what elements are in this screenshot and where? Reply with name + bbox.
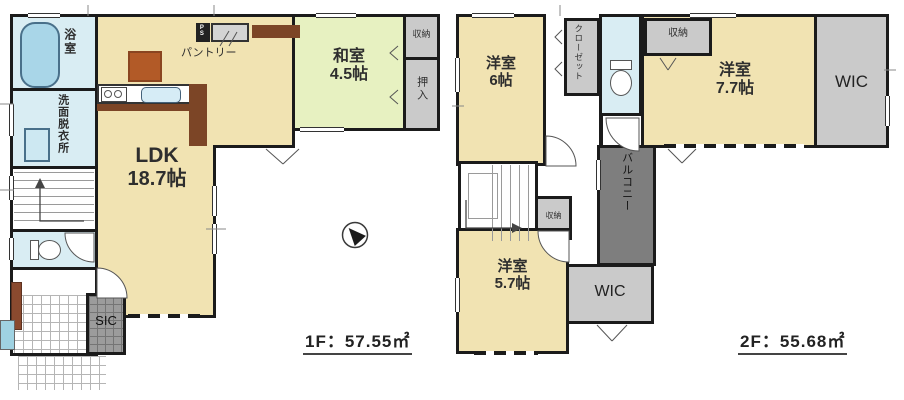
label-washitsu: 和室 4.5帖 [292, 48, 406, 85]
label-pantry: パントリー [181, 47, 237, 60]
label-west6: 洋室 6帖 [456, 55, 546, 90]
label-storage-1f: 収納 [403, 29, 440, 39]
north-arrow-icon [343, 223, 368, 248]
dimension-ticks [0, 5, 896, 229]
label-bath: 浴室 [62, 28, 76, 56]
label-storage-stairs: 収納 [535, 211, 572, 220]
label-west57: 洋室 5.7帖 [456, 258, 569, 293]
label-ldk-size: 18.7帖 [99, 168, 215, 191]
label-closet-2f: クローゼット [573, 24, 583, 81]
label-washitsu-name: 和室 [292, 48, 406, 66]
label-west6-name: 洋室 [456, 55, 546, 72]
label-area-1f: 1F：57.55㎡ [303, 327, 412, 355]
label-oshiire: 押入 [415, 76, 428, 102]
label-sic: SIC [86, 314, 126, 329]
label-area-2f: 2F：55.68㎡ [738, 327, 847, 355]
label-washroom: 洗面脱衣所 [56, 94, 69, 154]
label-wic-bottom: WIC [566, 283, 654, 301]
stair-arrow-1f [35, 178, 84, 221]
label-west57-name: 洋室 [456, 258, 569, 275]
label-washitsu-size: 4.5帖 [292, 66, 406, 84]
label-west77-name: 洋室 [660, 62, 810, 80]
label-storage-77: 収納 [644, 28, 712, 40]
label-west57-size: 5.7帖 [456, 275, 569, 292]
label-ldk: LDK 18.7帖 [99, 144, 215, 191]
floorplan-canvas: 浴室 洗面脱衣所 PS パントリー LDK 18.7帖 和室 4.5帖 収納 押… [0, 0, 904, 400]
pantry-pointer [220, 31, 237, 46]
label-balcony: バルコニー [620, 152, 633, 212]
label-ps: PS [198, 25, 205, 37]
label-wic-top: WIC [814, 72, 889, 92]
label-ldk-name: LDK [99, 144, 215, 168]
stair-arrow-2f [466, 200, 522, 233]
label-west77: 洋室 7.7帖 [660, 62, 810, 99]
label-west77-size: 7.7帖 [660, 80, 810, 98]
label-west6-size: 6帖 [456, 72, 546, 89]
